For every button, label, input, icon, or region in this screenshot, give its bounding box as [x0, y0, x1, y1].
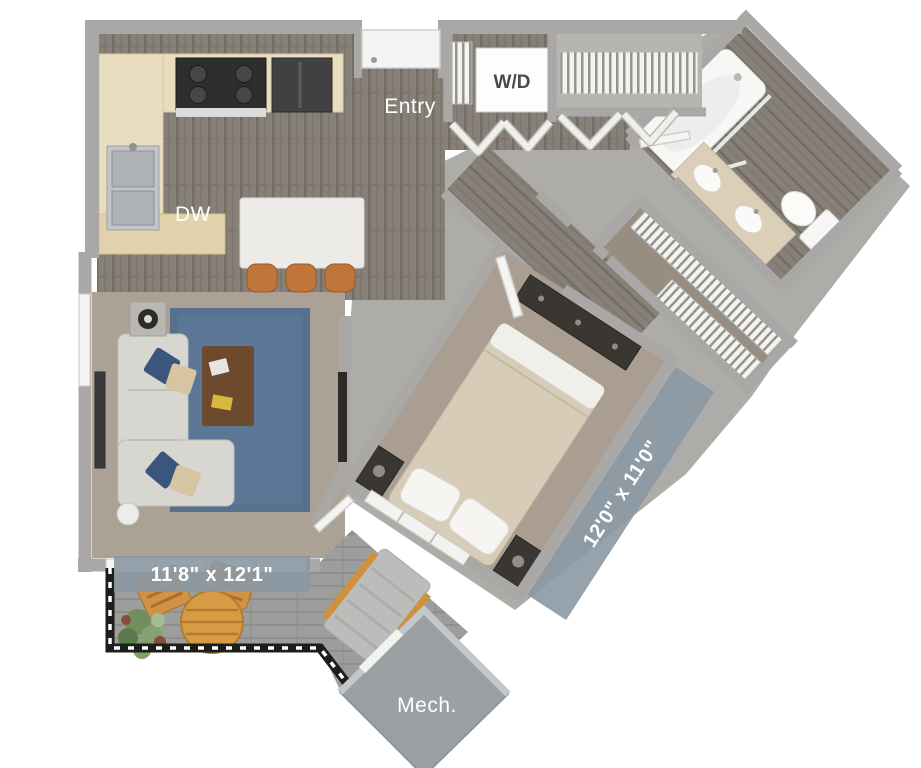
dishwasher-label: DW [175, 203, 211, 226]
stove [176, 58, 266, 110]
bar-stool [247, 264, 277, 292]
sink-basin [112, 191, 154, 225]
floor-lamp [117, 503, 139, 525]
mech-label: Mech. [397, 694, 457, 717]
laundry-shelf [452, 42, 472, 104]
stove-burner [236, 66, 253, 83]
wall-art [95, 372, 105, 468]
bar-stool [325, 264, 355, 292]
floor-plan-page: 12'0" x 11'0" W/D [0, 0, 921, 768]
kitchen-island [240, 198, 364, 268]
refrigerator [272, 58, 332, 112]
stove-burner [190, 66, 207, 83]
living-dimension-label: 11'8" x 12'1" [151, 564, 274, 586]
stove-burner [190, 87, 207, 104]
plant-pot [121, 615, 131, 625]
oven-handle [176, 108, 266, 117]
table-lamp-top [144, 315, 152, 323]
floor-plan-canvas: 12'0" x 11'0" W/D [0, 0, 921, 768]
washer-dryer-label: W/D [494, 72, 531, 93]
coffee-table [202, 346, 254, 426]
kitchen-faucet [129, 143, 137, 151]
living-window-left [79, 294, 90, 386]
entry-door-handle [371, 57, 377, 63]
tv [338, 372, 347, 462]
bar-stool [286, 264, 316, 292]
living-room-furniture [117, 302, 310, 525]
entry-label: Entry [384, 95, 436, 118]
sink-basin [112, 151, 154, 187]
coat-closet-rod [560, 52, 698, 94]
stove-burner [236, 87, 253, 104]
plant-leaves [151, 613, 165, 627]
